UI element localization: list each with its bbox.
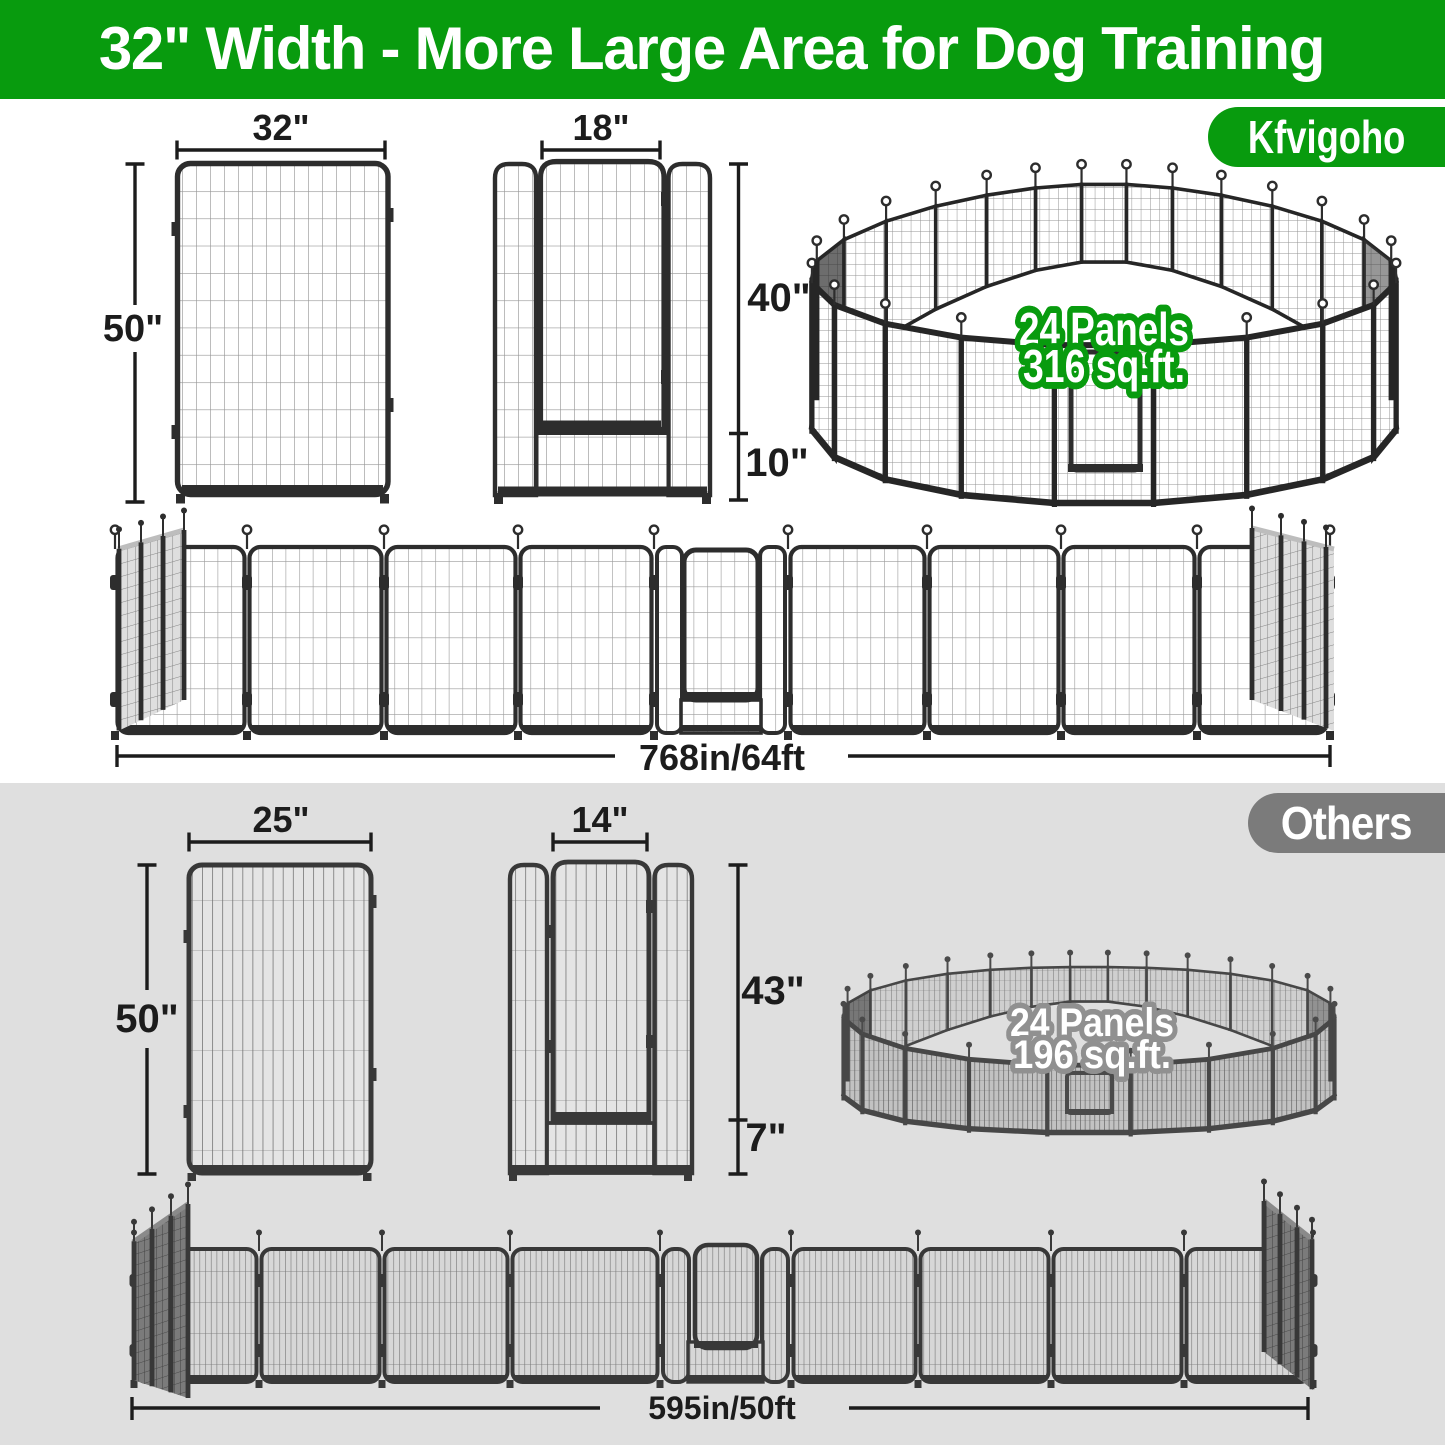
svg-text:768in/64ft: 768in/64ft [639, 737, 805, 778]
svg-text:316 sq.ft.: 316 sq.ft. [1023, 340, 1185, 392]
svg-text:14": 14" [571, 799, 628, 840]
svg-text:25": 25" [252, 799, 309, 840]
svg-text:10": 10" [745, 441, 808, 485]
svg-text:50": 50" [103, 308, 163, 350]
svg-text:40": 40" [747, 276, 810, 320]
svg-text:32": 32" [252, 107, 309, 148]
svg-text:18": 18" [572, 107, 629, 148]
svg-text:43": 43" [741, 969, 804, 1013]
svg-text:50": 50" [115, 997, 178, 1041]
svg-text:595in/50ft: 595in/50ft [648, 1390, 796, 1426]
svg-text:196 sq.ft.: 196 sq.ft. [1013, 1033, 1171, 1077]
svg-text:7": 7" [745, 1116, 786, 1160]
